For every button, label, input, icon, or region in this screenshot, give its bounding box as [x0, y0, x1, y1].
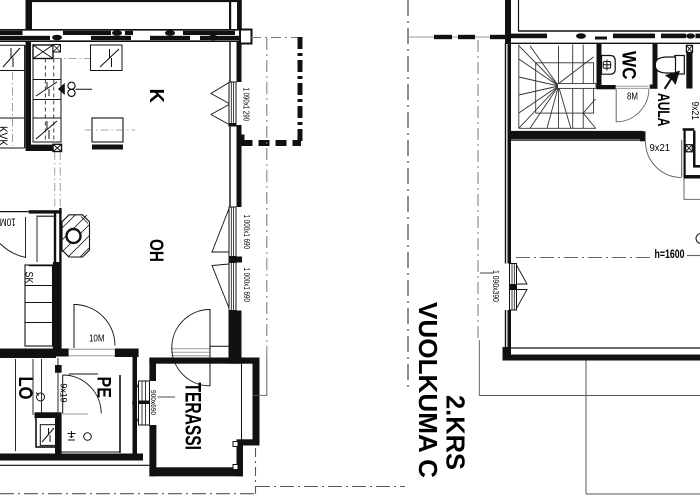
svg-text:1 090x1 290: 1 090x1 290: [242, 88, 251, 122]
svg-text:9x19: 9x19: [57, 384, 68, 403]
svg-text:SK: SK: [23, 272, 35, 285]
svg-text:1 000x1 690: 1 000x1 690: [242, 215, 251, 250]
svg-text:10M: 10M: [0, 216, 16, 228]
svg-text:OH: OH: [145, 239, 166, 262]
svg-text:WC: WC: [618, 51, 639, 80]
svg-text:K: K: [145, 89, 167, 104]
svg-text:AULA: AULA: [654, 93, 673, 127]
svg-text:900x690: 900x690: [149, 390, 158, 415]
svg-text:PE: PE: [93, 377, 114, 399]
svg-text:1 090x390: 1 090x390: [491, 270, 500, 302]
svg-text:1 000x1 690: 1 000x1 690: [242, 268, 251, 303]
svg-text:2.KRS: 2.KRS: [441, 395, 469, 470]
svg-text:9x21: 9x21: [650, 142, 671, 154]
svg-text:TERASSI: TERASSI: [181, 383, 206, 451]
svg-text:KVK: KVK: [0, 126, 10, 146]
svg-text:VUOLKUMA C: VUOLKUMA C: [413, 302, 441, 478]
svg-text:10M: 10M: [89, 334, 105, 345]
svg-text:9x21: 9x21: [689, 102, 700, 121]
svg-text:8M: 8M: [627, 92, 638, 103]
svg-text:h=1600: h=1600: [655, 249, 685, 261]
svg-text:LO: LO: [14, 377, 35, 400]
